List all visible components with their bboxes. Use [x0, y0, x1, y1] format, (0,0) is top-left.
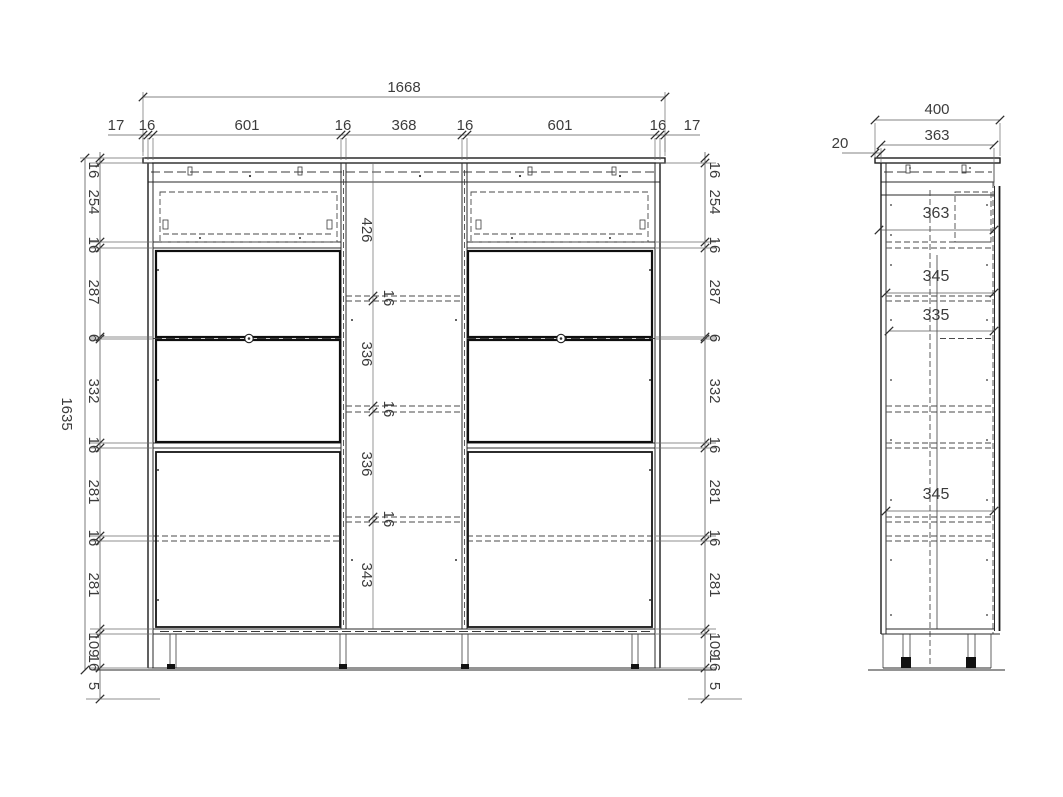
dim-left-9: 281: [85, 572, 102, 597]
dim-left-6: 16: [85, 437, 102, 454]
front-dimensions: 1668 17 16 601 16 368 16 601 16 17 1635: [58, 79, 742, 703]
dim-left-7: 281: [85, 479, 102, 504]
dim-left-5: 332: [85, 378, 102, 403]
dim-right-3: 287: [706, 279, 723, 304]
dim-left-2: 16: [85, 237, 102, 254]
dim-left-11: 109: [85, 632, 102, 657]
dim-top-7: 16: [650, 117, 667, 134]
dim-top-8: 17: [684, 117, 701, 134]
dim-side-shelf-0: 363: [923, 205, 950, 222]
technical-drawing: 1668 17 16 601 16 368 16 601 16 17 1635: [0, 0, 1063, 797]
dim-center-1: 16: [380, 290, 397, 307]
dim-left-8: 16: [85, 530, 102, 547]
dim-right-0: 16: [706, 162, 723, 179]
dim-right-2: 16: [706, 237, 723, 254]
dim-right-4: 6: [706, 334, 723, 342]
dim-front-total-width: 1668: [387, 79, 420, 96]
dim-right-9: 281: [706, 572, 723, 597]
drawing-page: 1668 17 16 601 16 368 16 601 16 17 1635: [0, 0, 1063, 797]
dim-side-total-depth: 400: [924, 101, 949, 118]
dim-center-2: 336: [358, 341, 375, 366]
dim-top-0: 17: [108, 117, 125, 134]
dim-center-0: 426: [358, 217, 375, 242]
front-view-fronts: [153, 192, 655, 627]
dim-side-shelf-1: 345: [923, 268, 950, 285]
dim-right-11: 109: [706, 632, 723, 657]
dim-right-5: 332: [706, 378, 723, 403]
dim-side-shelf-2: 335: [923, 307, 950, 324]
dim-right-8: 16: [706, 530, 723, 547]
dim-top-3: 16: [335, 117, 352, 134]
dim-left-0: 16: [85, 162, 102, 179]
dim-top-4: 368: [391, 117, 416, 134]
dim-left-1: 254: [85, 189, 102, 214]
dim-right-1: 254: [706, 189, 723, 214]
dim-right-12: 5: [706, 682, 723, 690]
dim-side-shelf-3: 345: [923, 486, 950, 503]
dim-top-2: 601: [234, 117, 259, 134]
dim-top-6: 601: [547, 117, 572, 134]
dim-center-6: 343: [358, 562, 375, 587]
dim-left-4: 6: [85, 334, 102, 342]
dim-left-3: 287: [85, 279, 102, 304]
dim-center-5: 16: [380, 511, 397, 528]
dim-top-1: 16: [139, 117, 156, 134]
dim-top-5: 16: [457, 117, 474, 134]
dim-center-4: 336: [358, 451, 375, 476]
side-view-carcass: [868, 158, 1005, 670]
front-view-carcass: [92, 158, 716, 670]
dim-right-7: 281: [706, 479, 723, 504]
dim-front-total-height: 1635: [58, 397, 75, 430]
dim-center-3: 16: [380, 401, 397, 418]
dim-side-body-depth: 363: [924, 127, 949, 144]
dim-left-12: 5: [85, 682, 102, 690]
dim-side-back-offset: 20: [832, 135, 849, 152]
dim-right-6: 16: [706, 437, 723, 454]
